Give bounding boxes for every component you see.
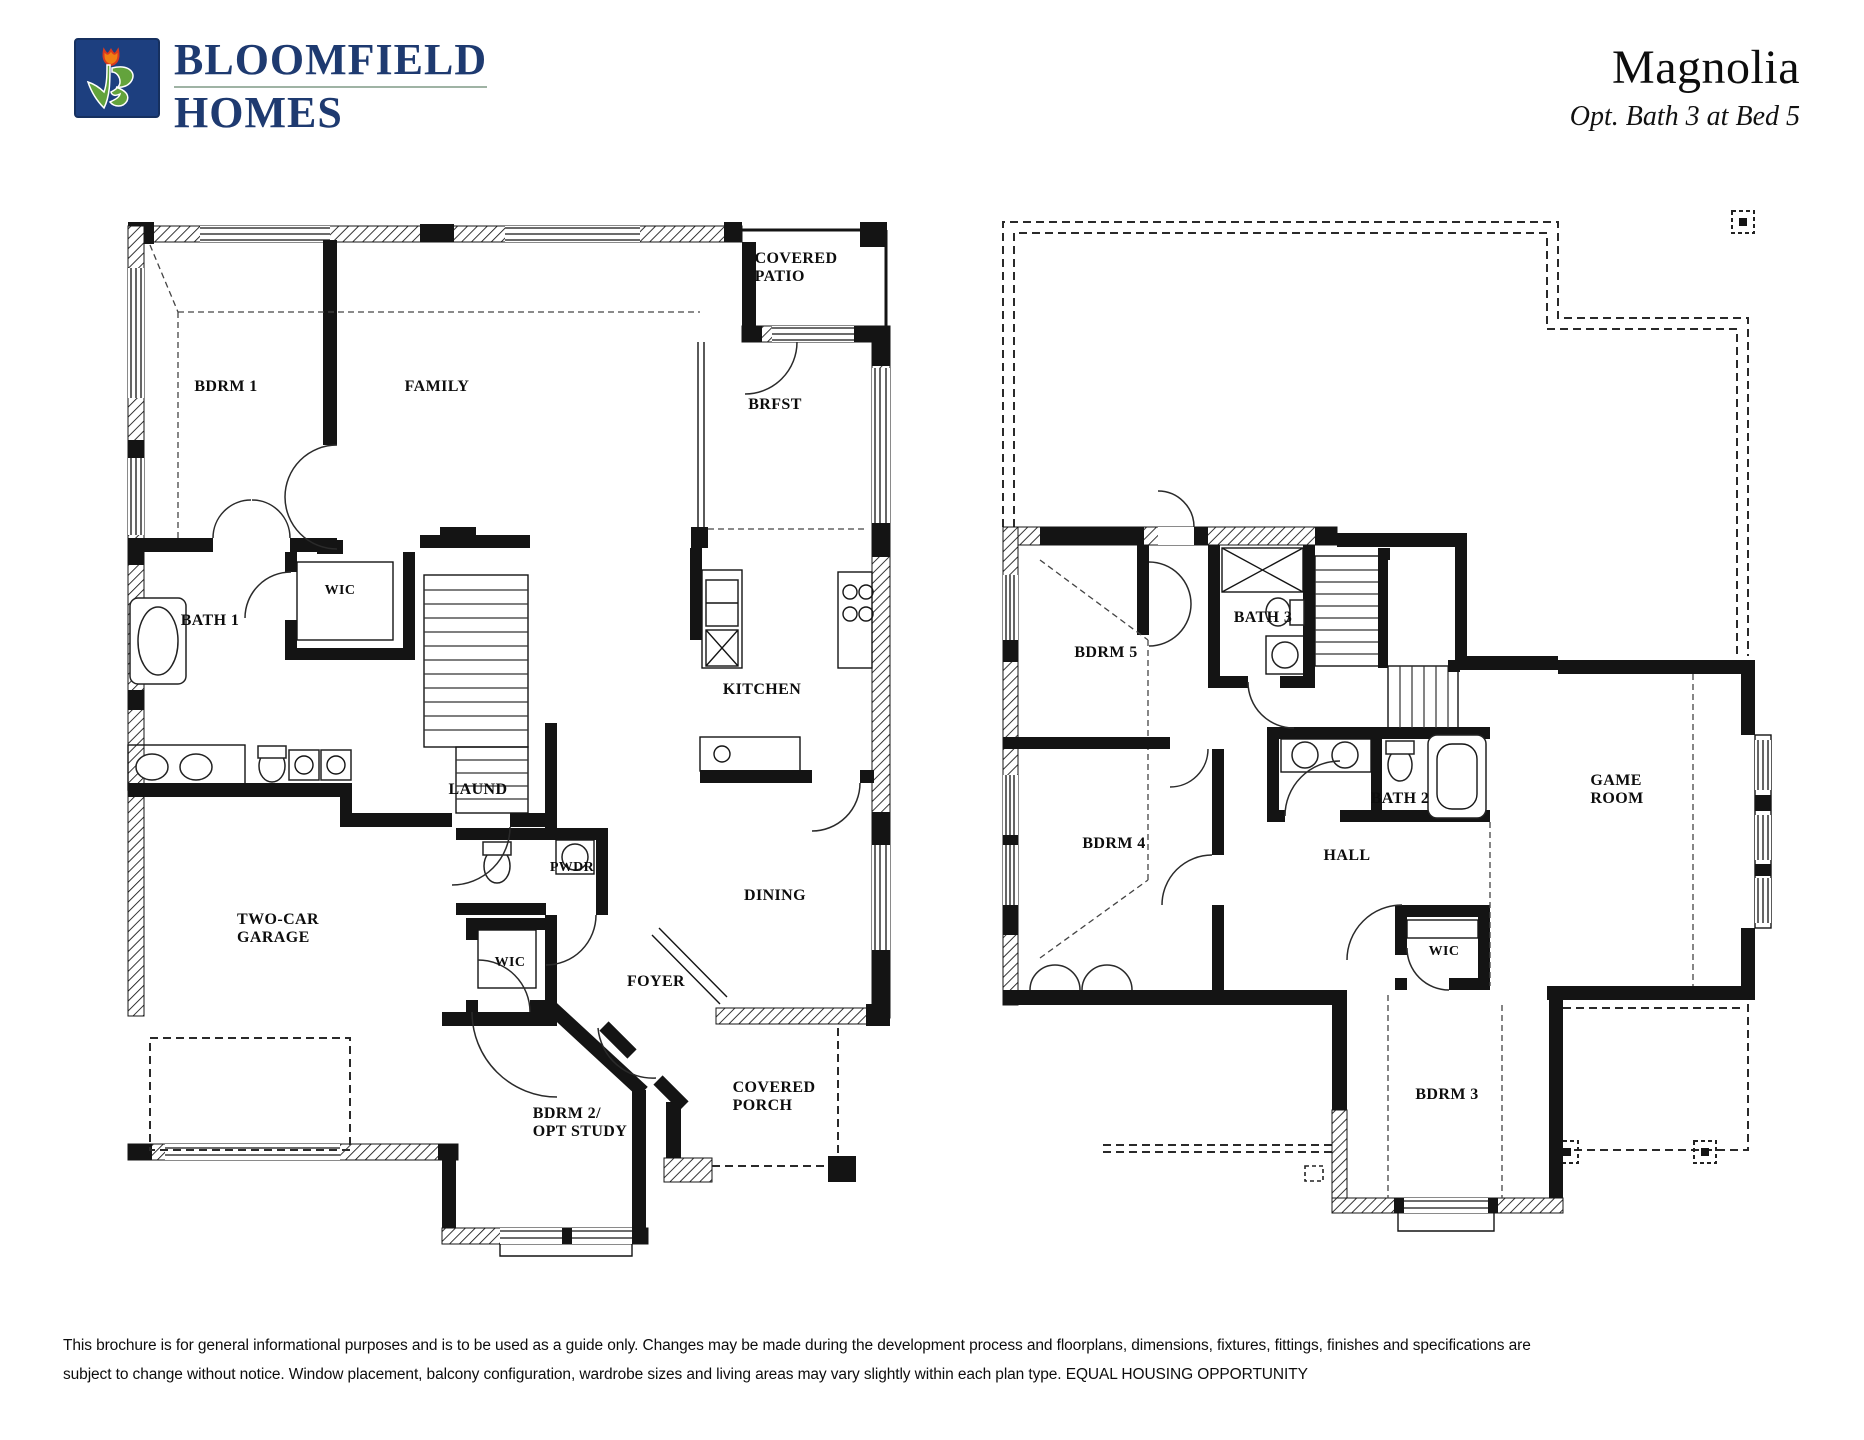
floor1-stairs (424, 575, 528, 813)
floorplan-drawing: .w{fill:#141414;} .h{fill:url(#hatch);st… (0, 0, 1864, 1440)
floor2-fixtures (1222, 548, 1486, 818)
dryer (321, 750, 351, 780)
room-label-gameroom: GAME ROOM (1590, 772, 1643, 808)
washer (289, 750, 319, 780)
kitchen-island (700, 737, 800, 771)
room-label-foyer: FOYER (627, 973, 685, 991)
garage-pad-outline (150, 1038, 350, 1150)
room-label-bdrm1: BDRM 1 (194, 378, 257, 396)
floor2-roofline-dashed (1003, 222, 1748, 1152)
room-label-wic2: WIC (1429, 944, 1460, 960)
floor2-stairs (1315, 548, 1460, 728)
floor1-interior-walls (128, 240, 874, 1026)
disclaimer-line1: This brochure is for general information… (63, 1332, 1803, 1361)
room-label-dining: DINING (744, 887, 806, 905)
bath3-sink (1272, 642, 1298, 668)
room-label-bath3: BATH 3 (1234, 609, 1293, 627)
room-label-bath1: BATH 1 (181, 612, 240, 630)
room-label-garage: TWO-CAR GARAGE (237, 911, 319, 947)
room-label-covered-patio: COVERED PATIO (755, 250, 838, 286)
room-label-bdrm2: BDRM 2/ OPT STUDY (533, 1105, 627, 1141)
room-label-kitchen: KITCHEN (723, 681, 801, 699)
disclaimer-text: This brochure is for general information… (63, 1332, 1803, 1389)
floor2-dashed-lines (1040, 560, 1693, 1198)
room-label-wic-bath1: WIC (325, 583, 356, 599)
room-label-covered-porch: COVERED PORCH (733, 1079, 816, 1115)
disclaimer-line2: subject to change without notice. Window… (63, 1361, 1803, 1390)
room-label-brfst: BRFST (748, 396, 802, 414)
brochure-page: BLOOMFIELD HOMES Magnolia Opt. Bath 3 at… (0, 0, 1864, 1440)
floor2-porch-columns (1305, 211, 1754, 1181)
room-label-laund: LAUND (449, 781, 508, 799)
room-label-bdrm5: BDRM 5 (1074, 644, 1137, 662)
room-label-hall: HALL (1324, 847, 1371, 865)
room-label-wic-foyer: WIC (495, 955, 526, 971)
room-label-bath2: BATH 2 (1371, 790, 1430, 808)
room-label-pwdr: PWDR (550, 860, 594, 876)
room-label-bdrm4: BDRM 4 (1082, 835, 1145, 853)
room-label-family: FAMILY (405, 378, 470, 396)
floor2-plan (1003, 211, 1771, 1231)
room-label-bdrm3: BDRM 3 (1415, 1086, 1478, 1104)
